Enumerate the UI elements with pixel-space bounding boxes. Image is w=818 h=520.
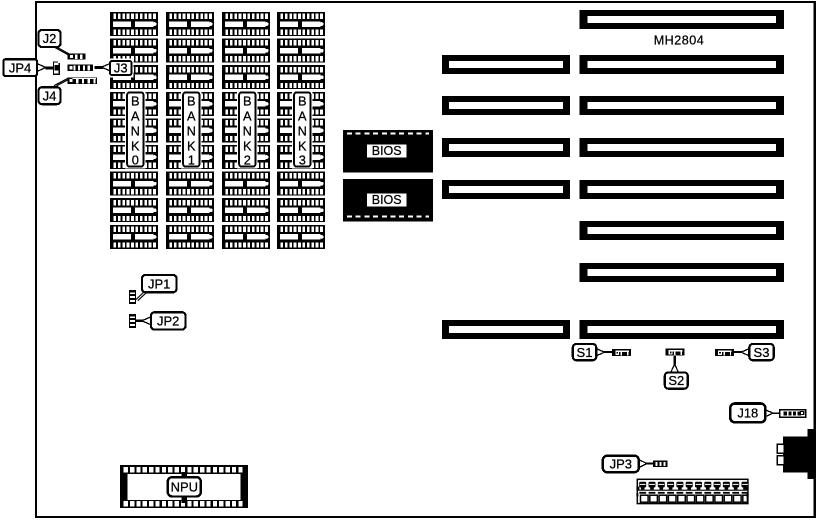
svg-text:N: N <box>243 124 252 139</box>
svg-text:BIOS: BIOS <box>372 193 402 207</box>
svg-text:3: 3 <box>299 153 306 168</box>
svg-text:J4: J4 <box>43 88 57 103</box>
svg-text:S3: S3 <box>754 345 770 360</box>
svg-text:A: A <box>131 109 140 124</box>
svg-text:N: N <box>131 124 140 139</box>
svg-text:J18: J18 <box>737 406 758 421</box>
svg-text:K: K <box>298 138 307 153</box>
svg-text:B: B <box>187 94 196 109</box>
svg-text:2: 2 <box>244 153 251 168</box>
svg-text:A: A <box>298 109 307 124</box>
svg-text:B: B <box>131 94 140 109</box>
svg-text:JP3: JP3 <box>610 457 632 472</box>
svg-text:B: B <box>298 94 307 109</box>
svg-text:BIOS: BIOS <box>372 144 402 158</box>
svg-text:S2: S2 <box>668 373 684 388</box>
svg-text:MH2804: MH2804 <box>654 33 705 47</box>
svg-text:JP2: JP2 <box>157 314 179 329</box>
svg-text:J2: J2 <box>43 31 57 46</box>
svg-text:B: B <box>243 94 252 109</box>
svg-text:NPU: NPU <box>171 480 198 495</box>
svg-text:JP1: JP1 <box>148 276 170 291</box>
svg-text:N: N <box>298 124 307 139</box>
svg-text:N: N <box>187 124 196 139</box>
svg-text:A: A <box>243 109 252 124</box>
svg-text:K: K <box>131 138 140 153</box>
svg-text:S1: S1 <box>577 345 593 360</box>
svg-text:A: A <box>187 109 196 124</box>
svg-text:JP4: JP4 <box>9 60 31 75</box>
svg-text:1: 1 <box>188 153 195 168</box>
svg-text:J3: J3 <box>114 61 128 76</box>
svg-text:K: K <box>243 138 252 153</box>
svg-text:K: K <box>187 138 196 153</box>
svg-text:0: 0 <box>132 153 139 168</box>
